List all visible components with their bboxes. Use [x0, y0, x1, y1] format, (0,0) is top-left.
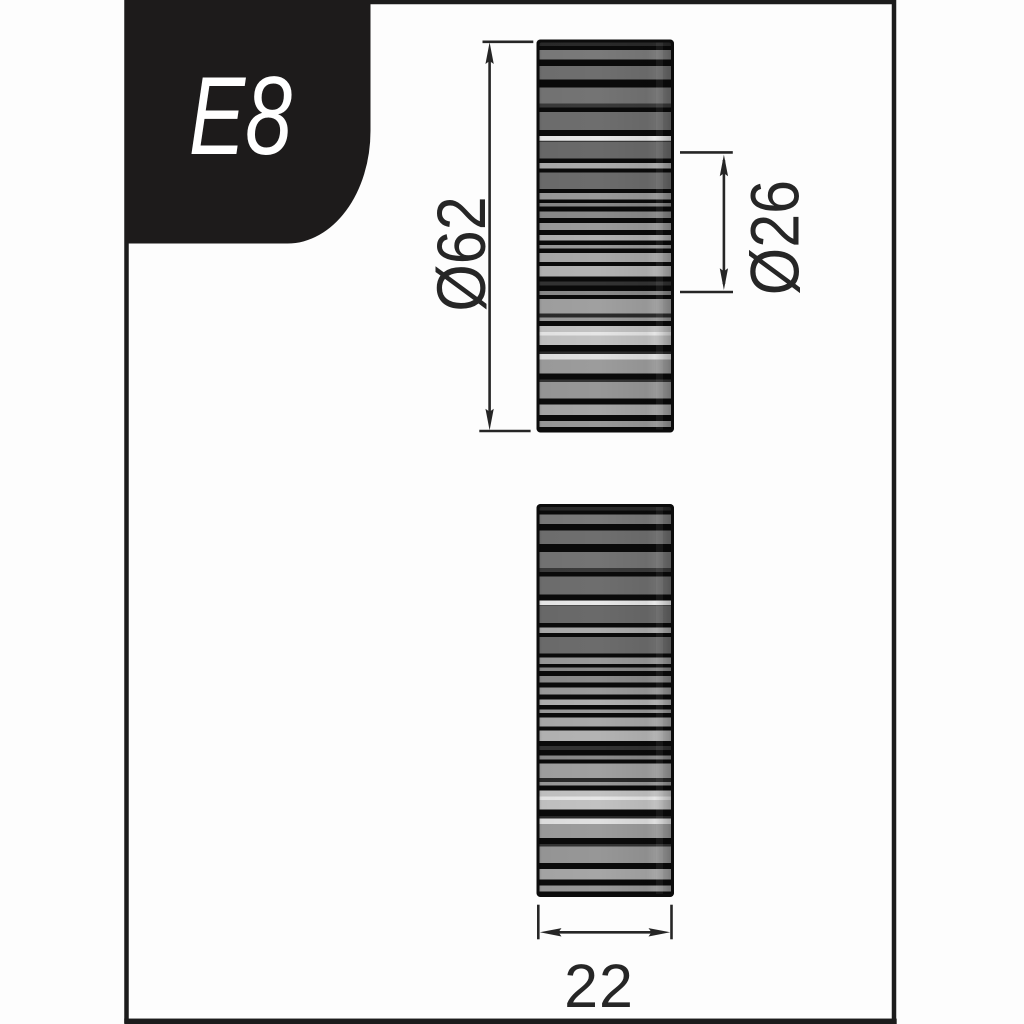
- svg-text:Ø62: Ø62: [423, 196, 500, 311]
- svg-text:Ø26: Ø26: [736, 180, 813, 295]
- svg-text:22: 22: [564, 952, 634, 1020]
- svg-text:E8: E8: [189, 54, 292, 178]
